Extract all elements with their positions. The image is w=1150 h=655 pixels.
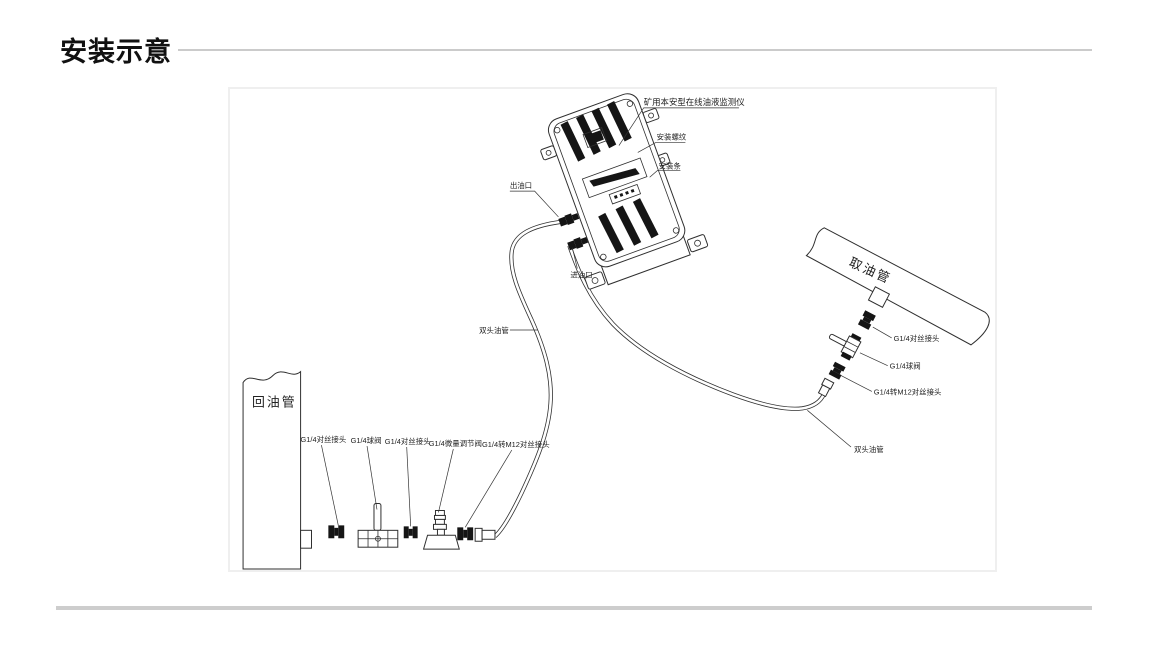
- hose-label-right: 双头油管: [807, 410, 883, 454]
- oil-inlet-port: [567, 235, 589, 251]
- return-fitting-connector-2: [404, 526, 418, 538]
- bottom-rule: [56, 606, 1092, 610]
- svg-text:双头油管: 双头油管: [479, 325, 509, 335]
- svg-text:矿用本安型在线油液监测仪: 矿用本安型在线油液监测仪: [644, 97, 745, 107]
- return-pipe-label: 回油管: [252, 394, 297, 409]
- svg-text:G1/4对丝接头: G1/4对丝接头: [894, 333, 940, 343]
- return-fitting-connector-1: [328, 525, 344, 538]
- svg-text:G1/4转M12对丝接头: G1/4转M12对丝接头: [874, 386, 942, 396]
- svg-text:进油口: 进油口: [570, 269, 592, 279]
- oil-outlet-port: [558, 211, 580, 227]
- svg-text:G1/4对丝接头: G1/4对丝接头: [301, 434, 347, 444]
- svg-text:G1/4球阀: G1/4球阀: [351, 435, 382, 445]
- installation-diagram: 回油管 取油管: [230, 89, 995, 570]
- intake-ball-valve: [824, 324, 863, 361]
- svg-text:安装螺纹: 安装螺纹: [657, 132, 687, 142]
- return-hose-end: [475, 528, 495, 541]
- intake-hose-end: [818, 378, 834, 397]
- return-ball-valve: [358, 504, 398, 548]
- oil-outlet-label: 出油口: [510, 180, 559, 217]
- svg-text:出油口: 出油口: [510, 180, 532, 190]
- svg-text:G1/4微量调节阀: G1/4微量调节阀: [429, 438, 482, 448]
- intake-pipe: 取油管: [806, 228, 989, 345]
- monitor-device: [530, 89, 709, 291]
- svg-text:G1/4转M12对丝接头: G1/4转M12对丝接头: [482, 439, 550, 449]
- title-rule: [178, 49, 1092, 51]
- svg-text:G1/4球阀: G1/4球阀: [890, 361, 921, 371]
- svg-text:安装条: 安装条: [659, 160, 682, 170]
- double-head-hose-left: [495, 222, 560, 536]
- return-adapter-fitting: [457, 527, 473, 540]
- svg-text:G1/4对丝接头: G1/4对丝接头: [385, 436, 431, 446]
- micro-regulating-valve: [424, 510, 460, 549]
- oil-inlet-label: 进油口: [570, 248, 592, 280]
- return-pipe: 回油管: [243, 372, 311, 569]
- hose-label-left: 双头油管: [479, 325, 538, 335]
- svg-text:双头油管: 双头油管: [854, 444, 884, 454]
- installation-diagram-panel: 回油管 取油管: [228, 87, 997, 572]
- page-title: 安装示意: [60, 30, 172, 69]
